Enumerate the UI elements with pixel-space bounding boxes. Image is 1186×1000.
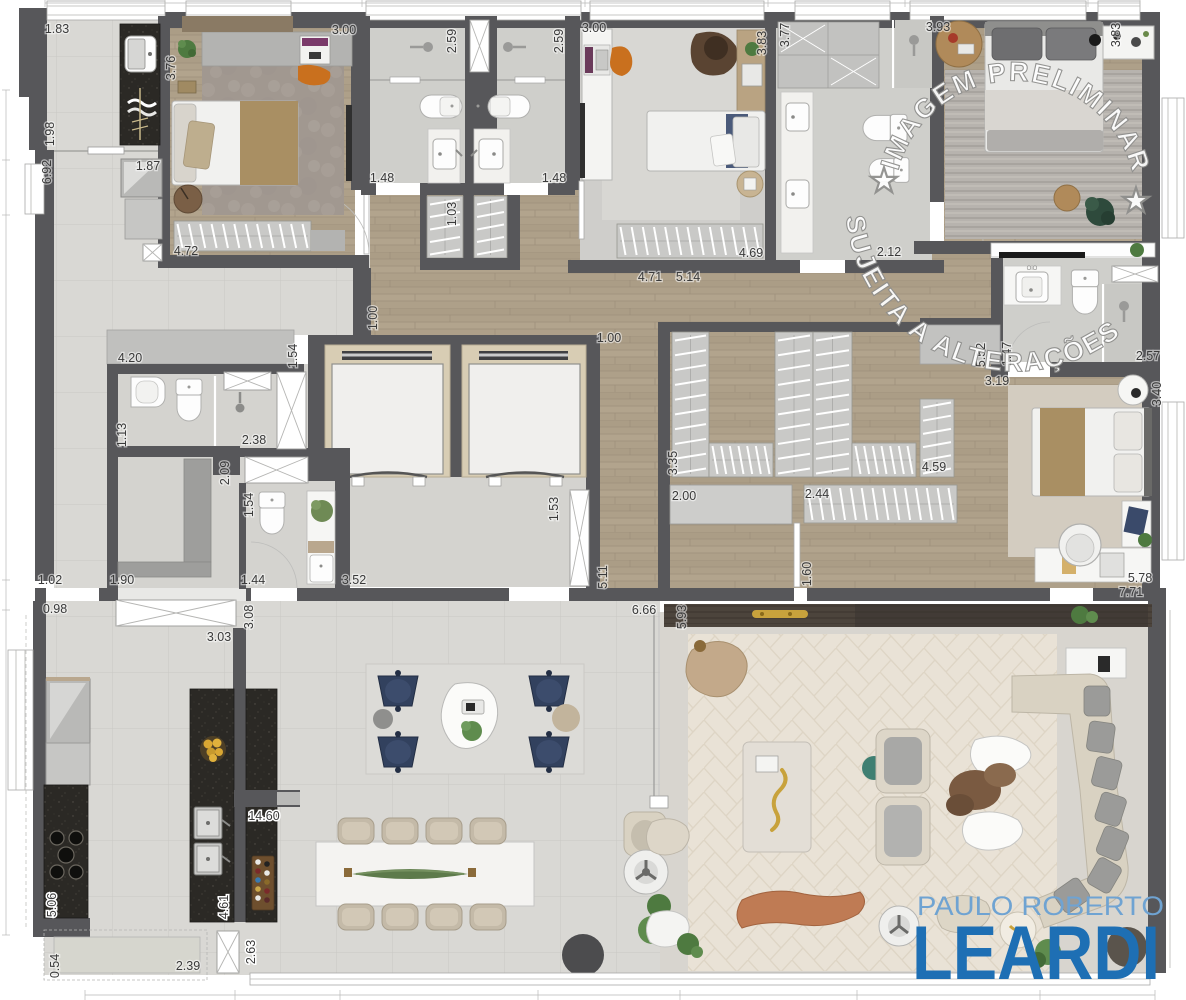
svg-text:3.83: 3.83 xyxy=(755,31,769,55)
svg-text:1.90: 1.90 xyxy=(110,573,134,587)
svg-text:3.00: 3.00 xyxy=(332,23,356,37)
svg-text:1.54: 1.54 xyxy=(242,493,256,517)
svg-text:2.44: 2.44 xyxy=(805,487,829,501)
svg-text:1.53: 1.53 xyxy=(547,497,561,521)
svg-text:3.40: 3.40 xyxy=(1150,382,1164,406)
svg-text:5.11: 5.11 xyxy=(596,565,610,588)
svg-text:OiO: OiO xyxy=(1027,266,1038,272)
svg-text:1.48: 1.48 xyxy=(542,171,566,185)
svg-text:1.48: 1.48 xyxy=(370,171,394,185)
svg-text:1.54: 1.54 xyxy=(286,344,300,368)
svg-text:7.71: 7.71 xyxy=(1119,585,1143,599)
svg-text:4.69: 4.69 xyxy=(739,246,763,260)
svg-text:3.52: 3.52 xyxy=(342,573,366,587)
svg-text:2.00: 2.00 xyxy=(672,489,696,503)
svg-text:1.44: 1.44 xyxy=(241,573,265,587)
svg-text:0.98: 0.98 xyxy=(43,602,67,616)
svg-text:2.59: 2.59 xyxy=(445,29,459,53)
svg-text:LEARDI: LEARDI xyxy=(912,911,1160,996)
svg-text:1.98: 1.98 xyxy=(43,122,57,146)
svg-text:2.38: 2.38 xyxy=(242,433,266,447)
svg-text:3.35: 3.35 xyxy=(666,451,680,475)
svg-text:1.00: 1.00 xyxy=(366,306,380,330)
svg-text:1.87: 1.87 xyxy=(136,159,160,173)
svg-text:★: ★ xyxy=(1121,182,1151,220)
svg-text:2.39: 2.39 xyxy=(176,959,200,973)
svg-text:14.60: 14.60 xyxy=(248,809,279,823)
svg-text:1.83: 1.83 xyxy=(45,22,69,36)
svg-text:3.76: 3.76 xyxy=(164,56,178,80)
svg-text:★: ★ xyxy=(869,162,899,200)
svg-text:5.93: 5.93 xyxy=(675,605,689,629)
svg-text:6.66: 6.66 xyxy=(632,603,656,617)
svg-text:3.00: 3.00 xyxy=(582,21,606,35)
svg-text:2.63: 2.63 xyxy=(244,940,258,964)
svg-text:1.02: 1.02 xyxy=(38,573,62,587)
svg-text:5.06: 5.06 xyxy=(45,893,59,917)
svg-text:3.03: 3.03 xyxy=(207,630,231,644)
svg-text:6.92: 6.92 xyxy=(40,160,54,184)
svg-text:5.78: 5.78 xyxy=(1128,571,1152,585)
svg-text:2.12: 2.12 xyxy=(877,245,901,259)
svg-text:4.59: 4.59 xyxy=(922,460,946,474)
svg-text:1.60: 1.60 xyxy=(800,562,814,586)
svg-text:2.09: 2.09 xyxy=(218,461,232,485)
svg-text:4.71: 4.71 xyxy=(638,270,662,284)
svg-text:4.20: 4.20 xyxy=(118,351,142,365)
svg-text:4.61: 4.61 xyxy=(217,895,231,919)
svg-text:1.03: 1.03 xyxy=(445,202,459,226)
svg-text:4.72: 4.72 xyxy=(174,244,198,258)
svg-text:2.57: 2.57 xyxy=(1136,349,1160,363)
svg-text:1.13: 1.13 xyxy=(115,423,129,447)
svg-text:0.54: 0.54 xyxy=(48,954,62,978)
svg-text:3.77: 3.77 xyxy=(778,23,792,47)
svg-text:5.14: 5.14 xyxy=(676,270,700,284)
svg-text:3.93: 3.93 xyxy=(926,20,950,34)
svg-text:3.08: 3.08 xyxy=(242,605,256,629)
svg-text:1.00: 1.00 xyxy=(597,331,621,345)
svg-text:2.59: 2.59 xyxy=(552,29,566,53)
svg-text:3.83: 3.83 xyxy=(1109,23,1123,47)
